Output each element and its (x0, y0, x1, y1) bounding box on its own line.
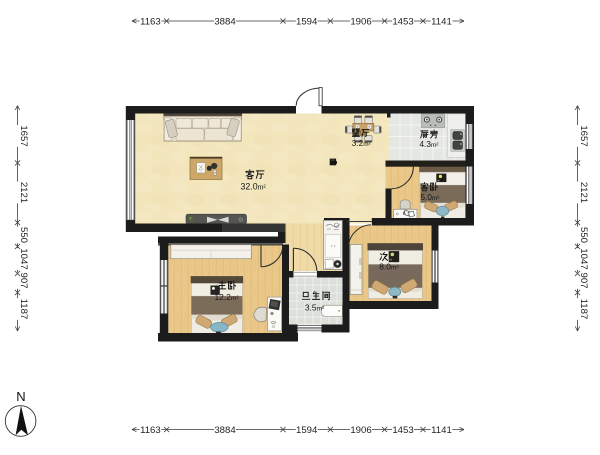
svg-text:907: 907 (578, 272, 589, 288)
svg-text:1141: 1141 (431, 425, 452, 436)
svg-text:907: 907 (18, 272, 29, 288)
svg-text:1906: 1906 (350, 16, 371, 27)
svg-text:3.2m²: 3.2m² (352, 139, 371, 148)
svg-text:1906: 1906 (350, 425, 371, 436)
svg-text:1187: 1187 (18, 299, 29, 320)
svg-text:1657: 1657 (578, 125, 589, 146)
svg-text:3884: 3884 (214, 16, 236, 27)
svg-text:1594: 1594 (296, 425, 318, 436)
svg-text:4.3m²: 4.3m² (420, 140, 439, 149)
svg-text:3884: 3884 (214, 425, 236, 436)
svg-text:2121: 2121 (18, 182, 29, 203)
svg-text:550: 550 (18, 227, 29, 243)
svg-text:1187: 1187 (578, 299, 589, 320)
svg-text:2121: 2121 (578, 182, 589, 203)
svg-text:1453: 1453 (392, 425, 413, 436)
svg-text:5.0m²: 5.0m² (421, 193, 440, 202)
svg-text:N: N (16, 389, 25, 404)
svg-text:1163: 1163 (140, 425, 161, 436)
svg-text:550: 550 (578, 227, 589, 243)
svg-text:1594: 1594 (296, 16, 318, 27)
svg-text:1047: 1047 (578, 248, 589, 269)
svg-text:1453: 1453 (392, 16, 413, 27)
svg-text:1657: 1657 (18, 125, 29, 146)
svg-text:1141: 1141 (431, 16, 452, 27)
svg-text:1163: 1163 (140, 16, 161, 27)
svg-text:1047: 1047 (18, 248, 29, 269)
